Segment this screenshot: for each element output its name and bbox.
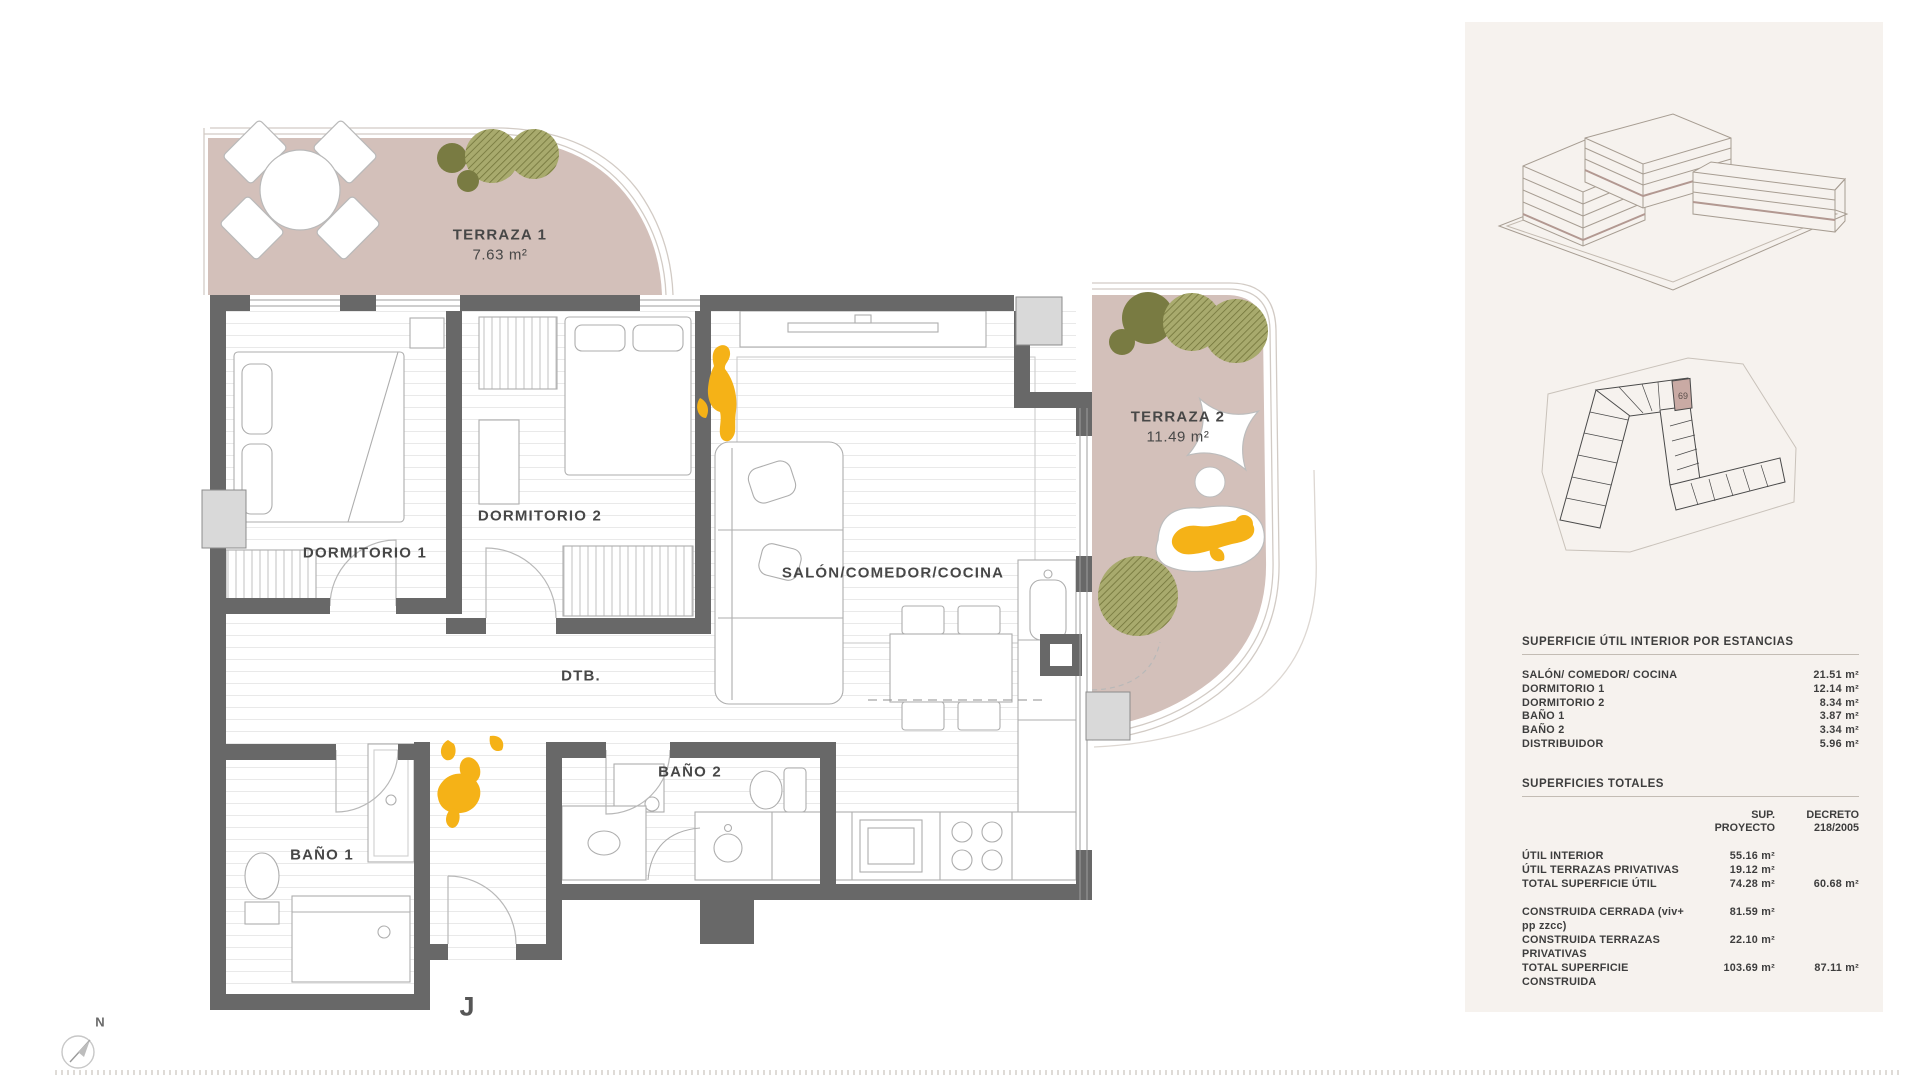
floorplan-drawing: [0, 0, 1460, 1080]
table-row: ÚTIL TERRAZAS PRIVATIVAS19.12 m²: [1522, 863, 1859, 877]
totals-header: SUP. PROYECTO DECRETO 218/2005: [1522, 809, 1859, 835]
table-row: DORMITORIO 28.34 m²: [1522, 697, 1859, 711]
table-row: CONSTRUIDA TERRAZAS PRIVATIVAS22.10 m²: [1522, 933, 1859, 961]
site-plan-thumbnail: 69: [1538, 352, 1810, 564]
floorplan-page: TERRAZA 1 7.63 m² TERRAZA 2 11.49 m² DOR…: [0, 0, 1920, 1080]
building-3d-sketch: [1493, 80, 1855, 302]
interior-areas-table: SUPERFICIE ÚTIL INTERIOR POR ESTANCIAS S…: [1522, 636, 1859, 752]
compass-icon: [62, 1036, 94, 1068]
interior-areas-title: SUPERFICIE ÚTIL INTERIOR POR ESTANCIAS: [1522, 636, 1859, 655]
table-row: ÚTIL INTERIOR55.16 m²: [1522, 849, 1859, 863]
unit-number: 69: [1678, 391, 1688, 401]
totals-title: SUPERFICIES TOTALES: [1522, 778, 1859, 797]
table-row: CONSTRUIDA CERRADA (viv+ pp zzcc)81.59 m…: [1522, 905, 1859, 933]
info-panel: 69 SUPERFICIE ÚTIL INTERIOR POR ESTANCIA…: [1465, 22, 1883, 1012]
table-row: BAÑO 13.87 m²: [1522, 710, 1859, 724]
tree-icon: [1098, 556, 1178, 636]
table-row: BAÑO 23.34 m²: [1522, 724, 1859, 738]
totals-table: SUPERFICIES TOTALES SUP. PROYECTO DECRET…: [1522, 778, 1859, 989]
table-row: SALÓN/ COMEDOR/ COCINA21.51 m²: [1522, 669, 1859, 683]
table-row: DISTRIBUIDOR5.96 m²: [1522, 738, 1859, 752]
pillar-core: [1050, 644, 1072, 666]
table-row: DORMITORIO 112.14 m²: [1522, 683, 1859, 697]
table-row: TOTAL SUPERFICIE CONSTRUIDA103.69 m²87.1…: [1522, 961, 1859, 989]
terrace-side-table: [1195, 467, 1225, 497]
ground-texture-strip: [55, 1070, 1903, 1075]
table-row: TOTAL SUPERFICIE ÚTIL74.28 m²60.68 m²: [1522, 877, 1859, 891]
